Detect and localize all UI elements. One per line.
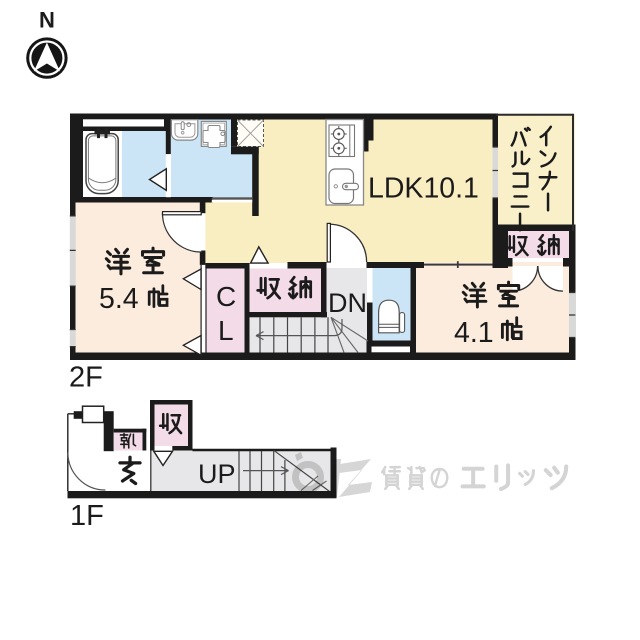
svg-text:1F: 1F bbox=[70, 500, 104, 532]
svg-text:4.1: 4.1 bbox=[454, 317, 494, 349]
svg-text:C: C bbox=[216, 281, 236, 312]
svg-text:LDK10.1: LDK10.1 bbox=[368, 173, 479, 205]
svg-text:L: L bbox=[218, 315, 234, 346]
svg-text:2F: 2F bbox=[69, 362, 103, 394]
svg-text:N: N bbox=[39, 8, 55, 33]
svg-text:5.4: 5.4 bbox=[99, 283, 139, 315]
svg-text:UP: UP bbox=[198, 459, 236, 489]
svg-text:DN: DN bbox=[328, 288, 367, 318]
